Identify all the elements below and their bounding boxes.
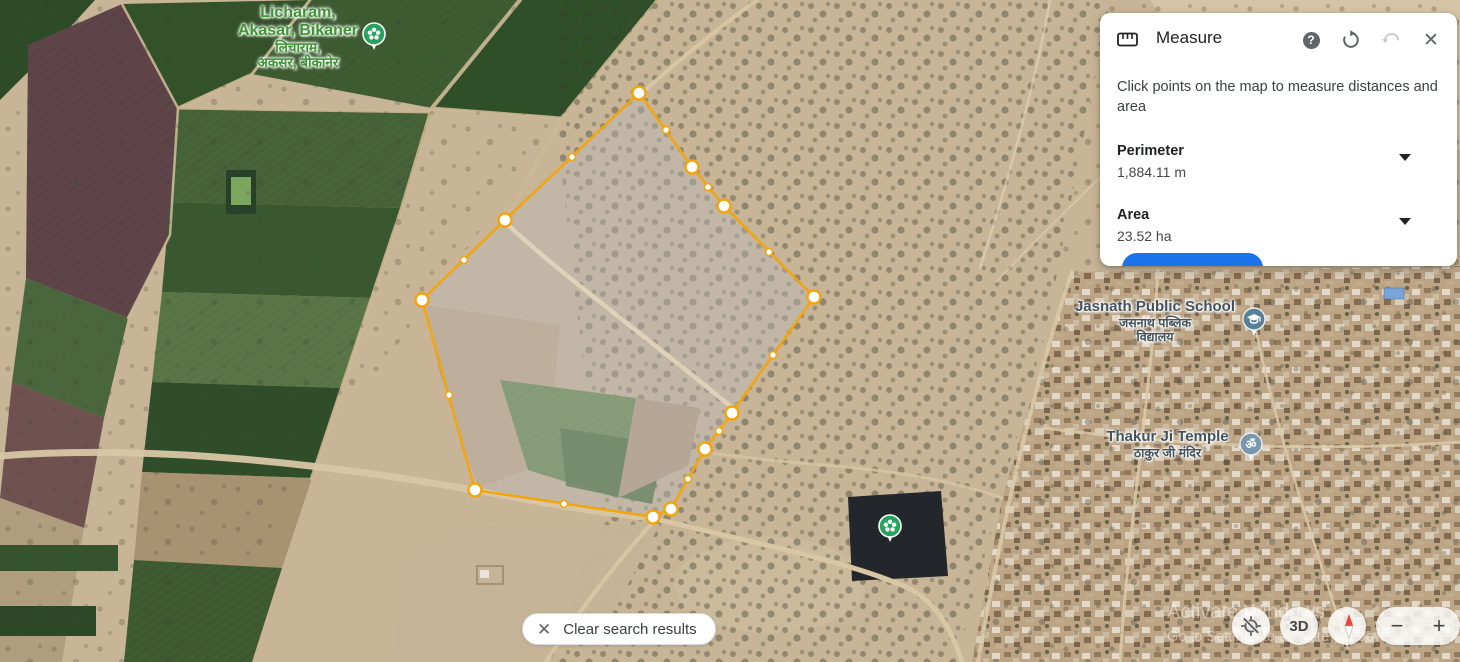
- location-off-icon: [1239, 614, 1263, 638]
- area-value: 23.52 ha: [1117, 228, 1439, 244]
- measure-midpoint[interactable]: [461, 257, 468, 264]
- refresh-button[interactable]: [1338, 27, 1364, 53]
- measure-vertex[interactable]: [499, 214, 512, 227]
- compass-button[interactable]: [1328, 607, 1366, 645]
- 3d-label: 3D: [1289, 618, 1308, 635]
- measure-midpoint[interactable]: [663, 127, 670, 134]
- perimeter-units-dropdown[interactable]: [1399, 154, 1411, 161]
- measure-vertex[interactable]: [647, 511, 660, 524]
- zoom-control: − +: [1376, 607, 1460, 645]
- zoom-in-button[interactable]: +: [1418, 607, 1460, 645]
- ruler-icon: [1117, 32, 1138, 47]
- measure-vertex[interactable]: [665, 503, 678, 516]
- area-units-dropdown[interactable]: [1399, 218, 1411, 225]
- measure-midpoint[interactable]: [770, 352, 777, 359]
- refresh-icon: [1341, 30, 1361, 50]
- close-icon: ✕: [1423, 31, 1439, 50]
- compass-icon: [1334, 611, 1360, 641]
- park-marker[interactable]: [877, 513, 903, 545]
- measure-vertex[interactable]: [633, 87, 646, 100]
- close-icon: ✕: [537, 621, 551, 638]
- measure-vertex[interactable]: [469, 484, 482, 497]
- zoom-out-button[interactable]: −: [1376, 607, 1418, 645]
- google-earth-window: Licharam, Akasar, Bikaner लिचाराम, अकसर,…: [0, 0, 1460, 662]
- measure-instruction: Click points on the map to measure dista…: [1117, 77, 1441, 117]
- om-icon: ॐ: [1246, 438, 1257, 452]
- panel-action-button[interactable]: [1122, 253, 1263, 266]
- park-marker[interactable]: [361, 21, 387, 53]
- help-button[interactable]: ?: [1298, 27, 1324, 53]
- help-icon: ?: [1303, 32, 1320, 49]
- 3d-view-button[interactable]: 3D: [1280, 607, 1318, 645]
- measure-vertex[interactable]: [718, 200, 731, 213]
- blue-roof-building: [1384, 288, 1404, 299]
- clear-search-results-button[interactable]: ✕ Clear search results: [522, 613, 716, 645]
- perimeter-value: 1,884.11 m: [1117, 164, 1439, 180]
- school-marker[interactable]: [1241, 306, 1267, 339]
- perimeter-label: Perimeter: [1117, 143, 1439, 159]
- measure-vertex[interactable]: [686, 161, 699, 174]
- my-location-button[interactable]: [1232, 607, 1270, 645]
- measure-panel-header: Measure ? ✕: [1100, 27, 1457, 53]
- temple-marker[interactable]: ॐ: [1238, 431, 1264, 464]
- measure-midpoint[interactable]: [561, 501, 568, 508]
- area-row: Area 23.52 ha: [1117, 207, 1439, 244]
- measure-midpoint[interactable]: [446, 392, 453, 399]
- measure-vertex[interactable]: [726, 407, 739, 420]
- area-label: Area: [1117, 207, 1439, 223]
- perimeter-row: Perimeter 1,884.11 m: [1117, 143, 1439, 180]
- measure-vertex[interactable]: [416, 294, 429, 307]
- measure-midpoint[interactable]: [685, 476, 692, 483]
- measure-midpoint[interactable]: [569, 154, 576, 161]
- undo-icon: [1381, 30, 1401, 50]
- measure-vertex[interactable]: [699, 443, 712, 456]
- measure-midpoint[interactable]: [705, 184, 712, 191]
- measure-vertex[interactable]: [808, 291, 821, 304]
- measure-panel: Measure ? ✕ Click points on the map t: [1100, 13, 1457, 266]
- measure-midpoint[interactable]: [716, 428, 723, 435]
- measure-midpoint[interactable]: [766, 249, 773, 256]
- clear-search-results-label: Clear search results: [563, 621, 696, 638]
- panel-title: Measure: [1156, 28, 1222, 48]
- undo-button[interactable]: [1378, 27, 1404, 53]
- close-button[interactable]: ✕: [1418, 27, 1444, 53]
